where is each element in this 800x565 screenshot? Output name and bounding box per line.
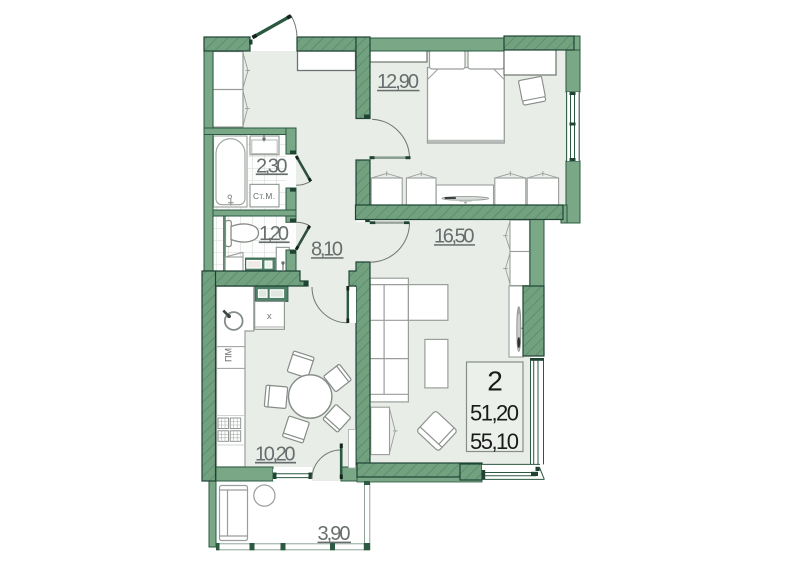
svg-text:2: 2	[487, 366, 503, 397]
svg-text:3,90: 3,90	[318, 523, 351, 545]
svg-text:Ст.М.: Ст.М.	[253, 191, 275, 201]
svg-text:12,90: 12,90	[377, 71, 419, 93]
svg-text:ПМ: ПМ	[224, 348, 234, 362]
svg-text:x: x	[267, 311, 272, 322]
svg-text:51,20: 51,20	[470, 401, 519, 426]
svg-text:55,10: 55,10	[470, 429, 519, 454]
